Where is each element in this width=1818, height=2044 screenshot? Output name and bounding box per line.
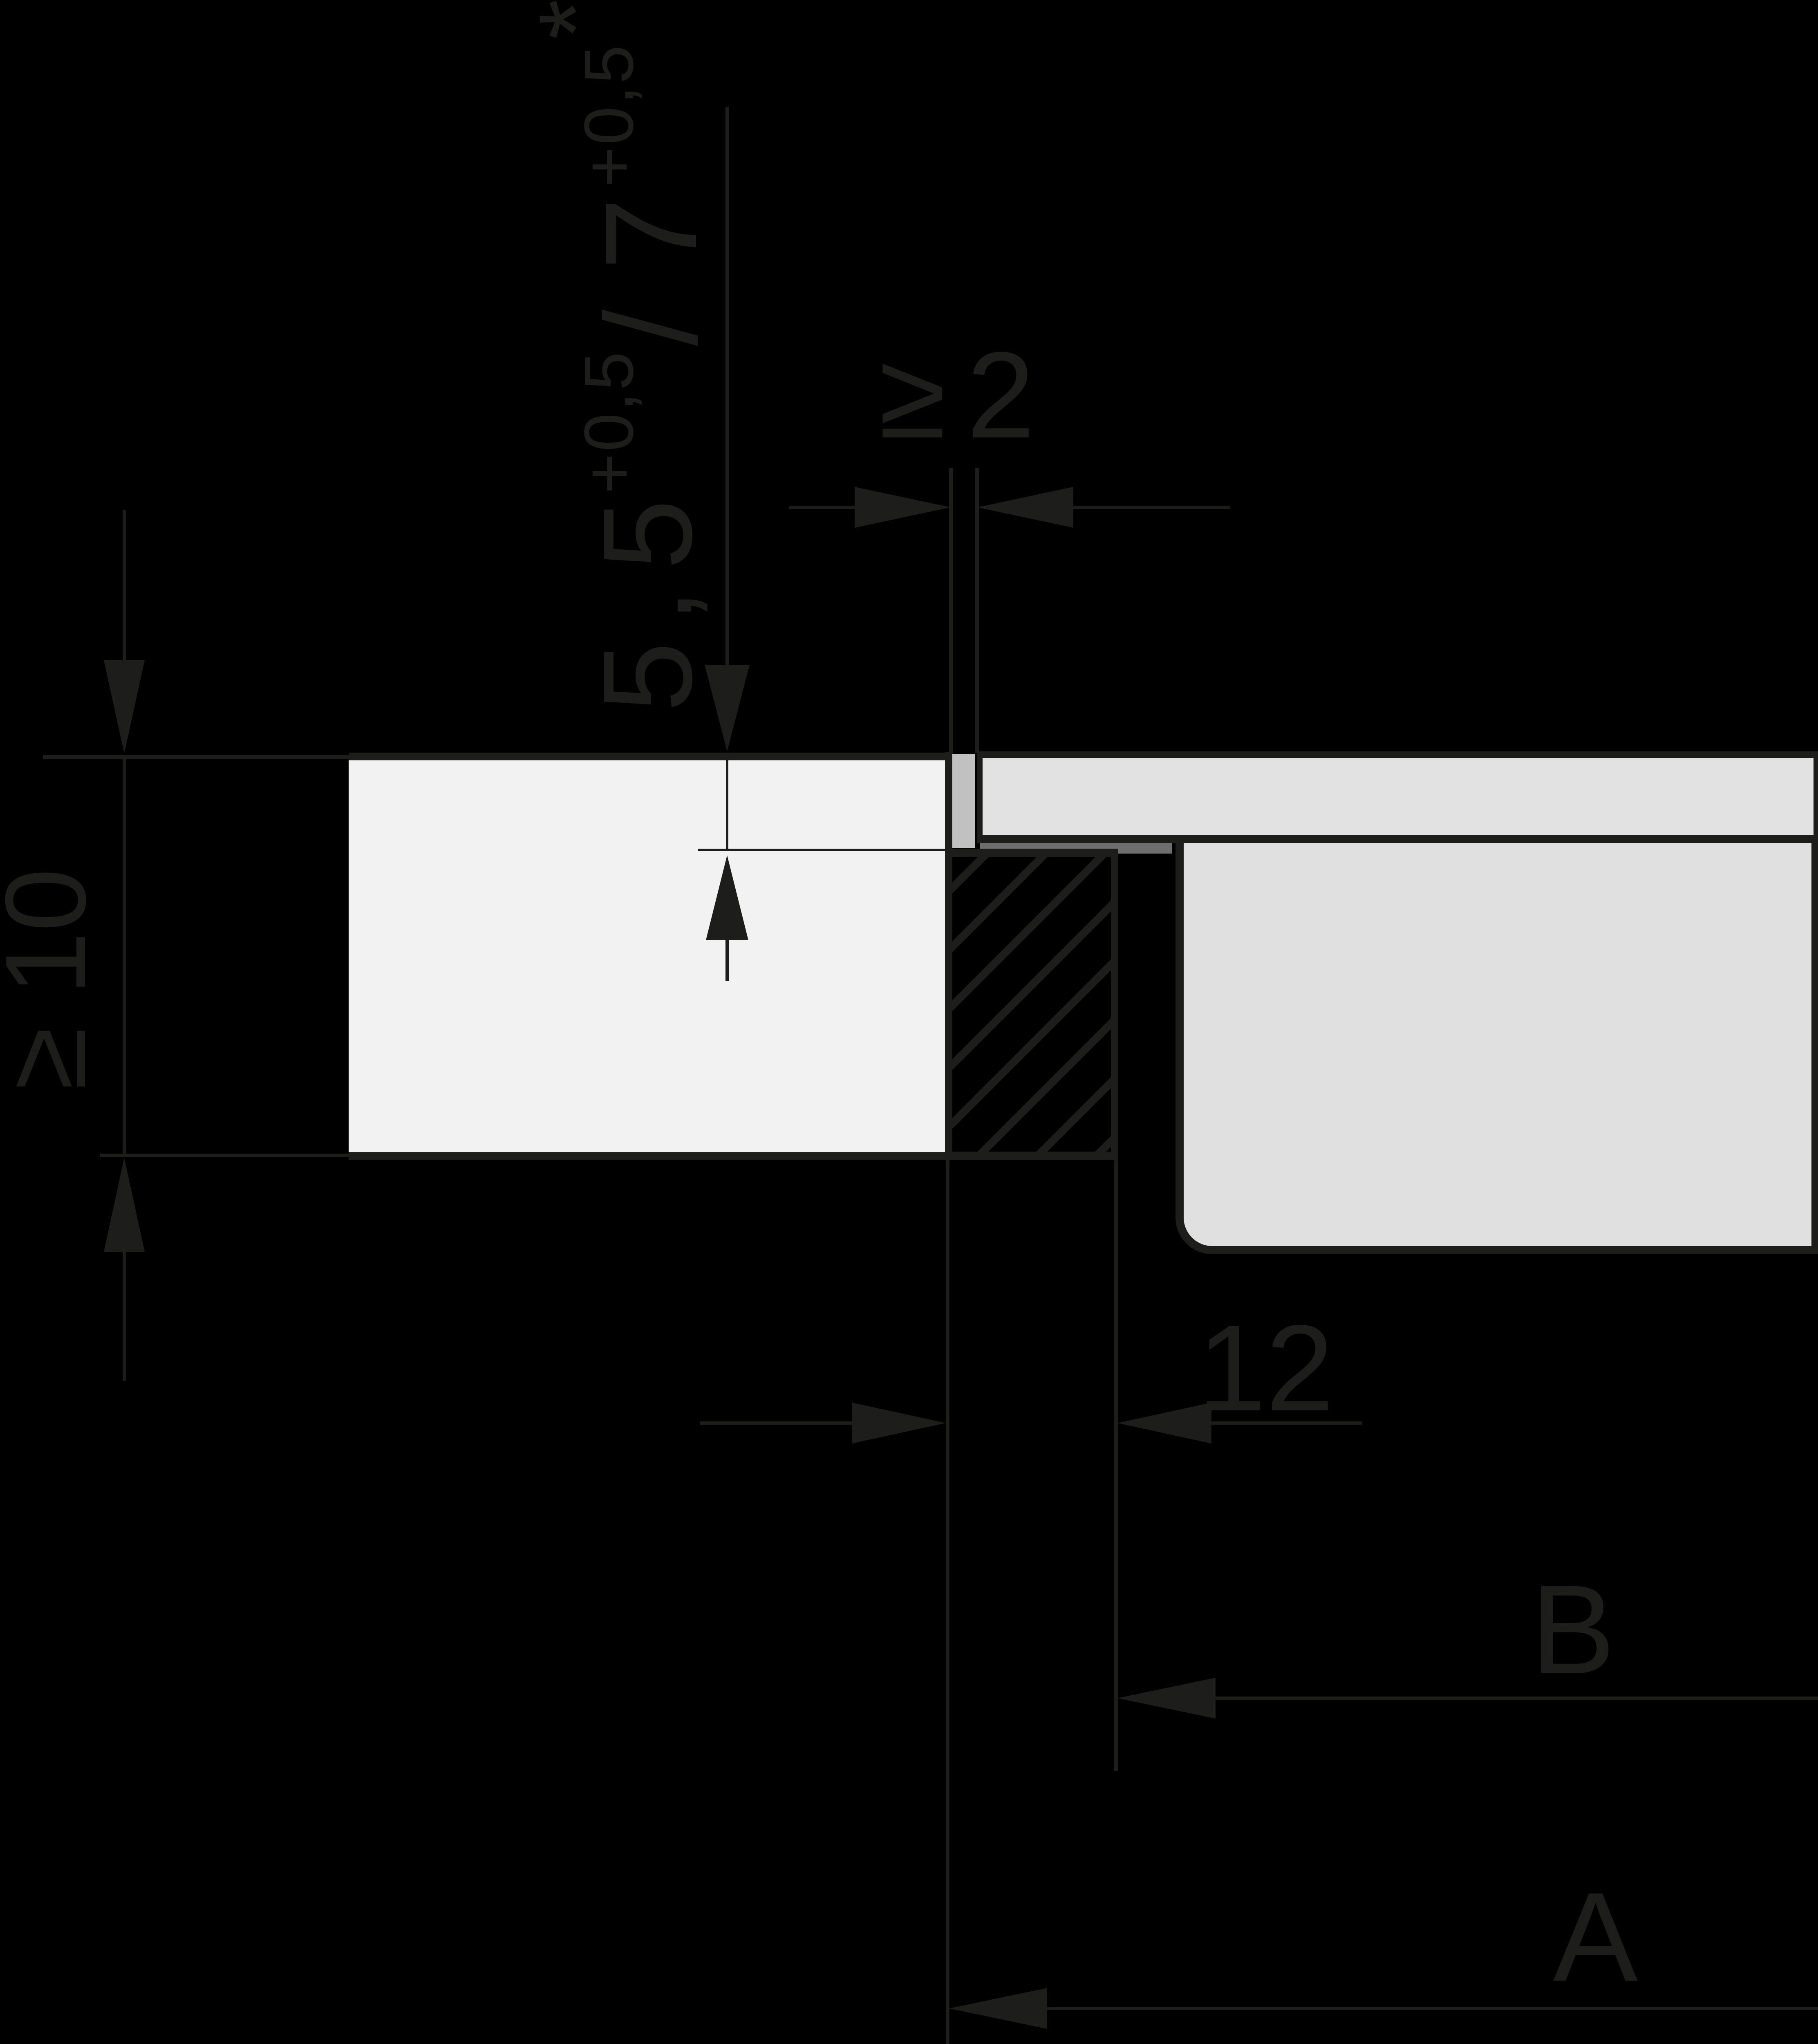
svg-text:B: B: [1531, 1558, 1615, 1700]
svg-text:/: /: [578, 309, 724, 346]
svg-text:≥ 10: ≥ 10: [0, 868, 110, 1090]
svg-text:A: A: [1553, 1866, 1638, 2008]
svg-text:≥: ≥: [879, 326, 946, 464]
svg-text:*: *: [517, 0, 634, 40]
svg-text:+0,5: +0,5: [570, 350, 648, 494]
svg-text:2: 2: [967, 326, 1035, 464]
svg-text:5,5: 5,5: [576, 481, 718, 712]
svg-text:+0,5: +0,5: [570, 43, 648, 187]
svg-text:7: 7: [578, 197, 724, 270]
svg-text:12: 12: [1198, 1299, 1334, 1437]
